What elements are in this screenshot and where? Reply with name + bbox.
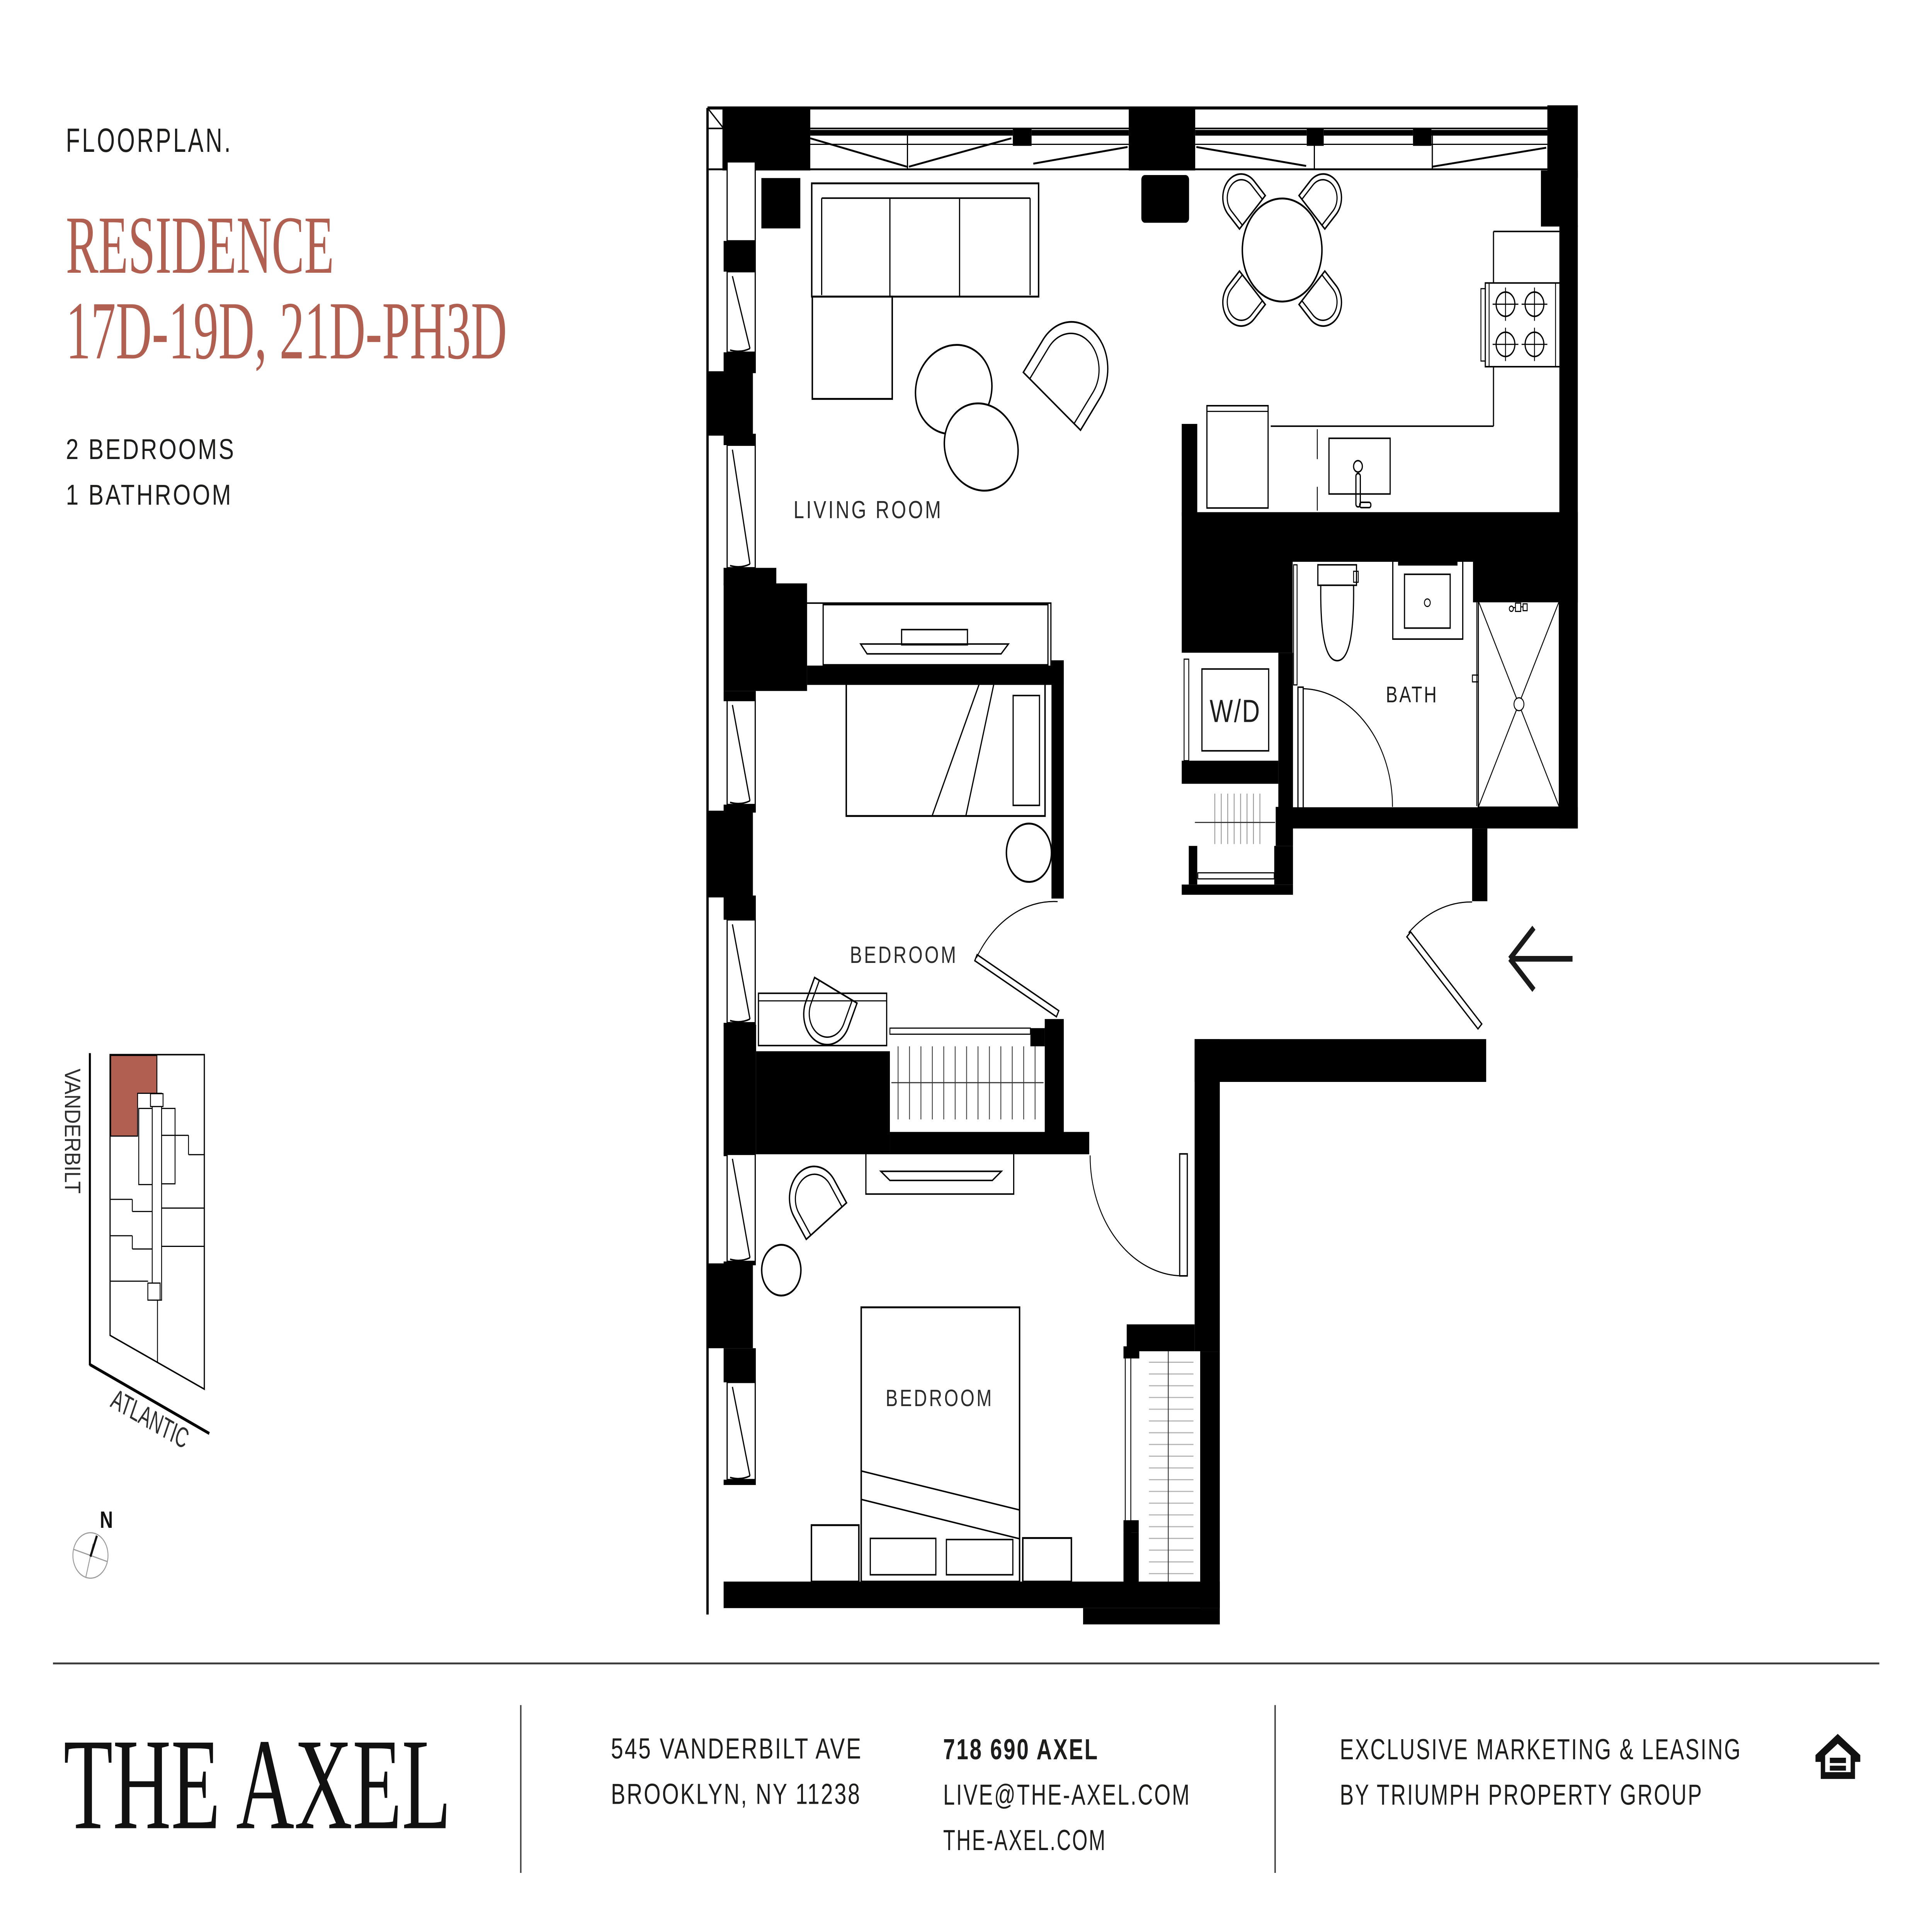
svg-text:BEDROOM: BEDROOM: [850, 942, 958, 968]
svg-text:BATH: BATH: [1386, 682, 1439, 707]
svg-text:BY TRIUMPH PROPERTY GROUP: BY TRIUMPH PROPERTY GROUP: [1340, 1779, 1703, 1811]
svg-text:LIVING ROOM: LIVING ROOM: [794, 496, 943, 524]
svg-text:17D-19D, 21D-PH3D: 17D-19D, 21D-PH3D: [66, 285, 507, 376]
svg-text:N: N: [100, 1507, 113, 1533]
svg-text:THE-AXEL.COM: THE-AXEL.COM: [943, 1824, 1107, 1857]
svg-text:545 VANDERBILT AVE: 545 VANDERBILT AVE: [611, 1733, 862, 1765]
svg-text:VANDERBILT: VANDERBILT: [60, 1069, 85, 1194]
svg-text:W/D: W/D: [1210, 693, 1261, 729]
svg-text:THE AXEL: THE AXEL: [63, 1712, 451, 1857]
svg-text:BEDROOM: BEDROOM: [886, 1385, 994, 1411]
svg-text:2 BEDROOMS: 2 BEDROOMS: [66, 434, 235, 466]
svg-text:LIVE@THE-AXEL.COM: LIVE@THE-AXEL.COM: [943, 1779, 1191, 1811]
svg-text:FLOORPLAN.: FLOORPLAN.: [66, 121, 233, 159]
svg-text:BROOKLYN, NY 11238: BROOKLYN, NY 11238: [611, 1778, 861, 1810]
svg-text:RESIDENCE: RESIDENCE: [66, 200, 334, 291]
svg-text:718 690 AXEL: 718 690 AXEL: [943, 1733, 1099, 1766]
svg-text:1 BATHROOM: 1 BATHROOM: [66, 479, 233, 511]
svg-text:EXCLUSIVE MARKETING & LEASING: EXCLUSIVE MARKETING & LEASING: [1340, 1733, 1742, 1766]
